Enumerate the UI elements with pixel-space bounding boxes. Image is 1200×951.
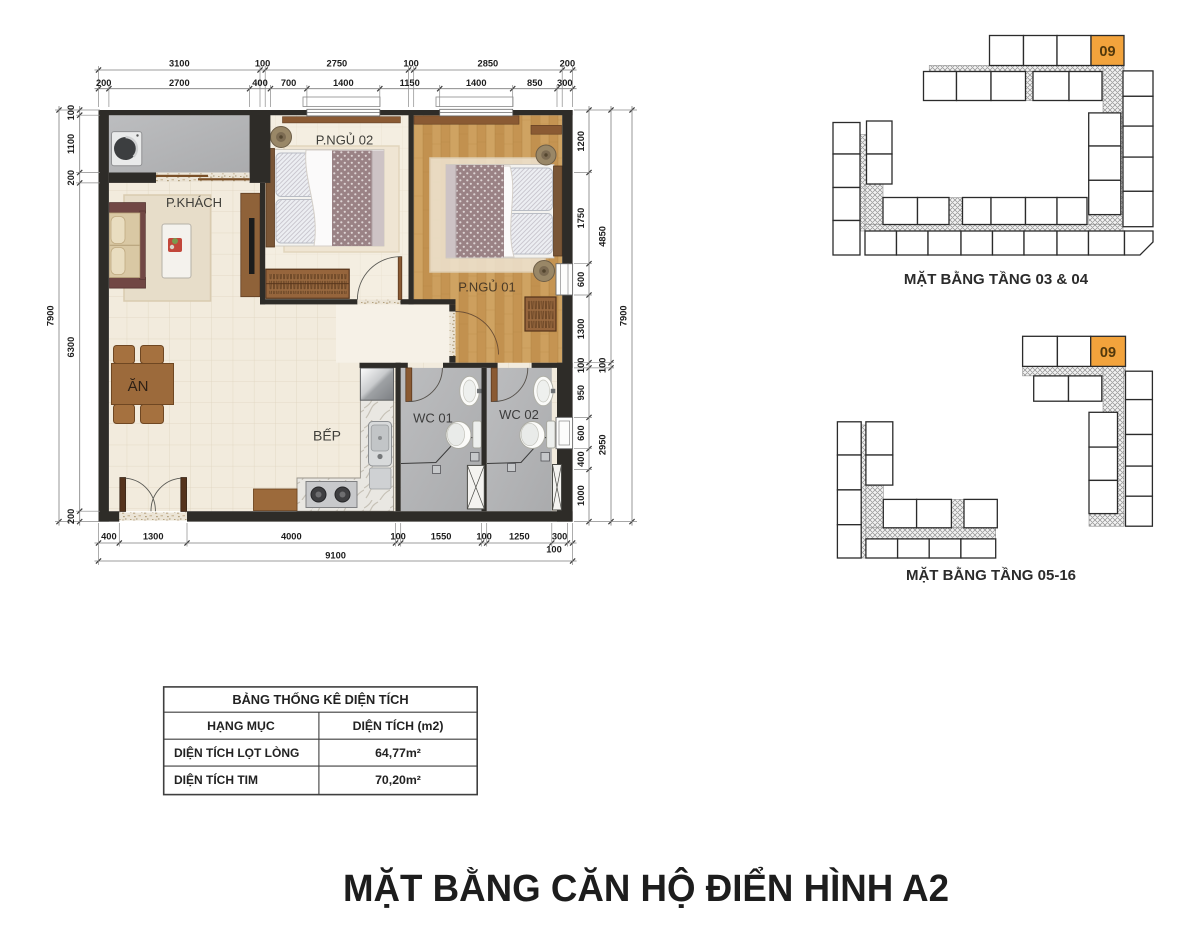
- svg-text:DIỆN TÍCH TIM: DIỆN TÍCH TIM: [174, 772, 258, 787]
- svg-text:70,20m²: 70,20m²: [375, 773, 421, 787]
- svg-text:1150: 1150: [400, 78, 420, 88]
- svg-text:950: 950: [576, 385, 586, 401]
- svg-text:HẠNG MỤC: HẠNG MỤC: [207, 719, 275, 733]
- svg-text:4850: 4850: [598, 226, 608, 247]
- svg-text:1750: 1750: [576, 208, 586, 229]
- svg-text:100: 100: [66, 105, 76, 121]
- svg-text:4000: 4000: [281, 532, 302, 542]
- svg-text:P.NGỦ 01: P.NGỦ 01: [458, 280, 516, 295]
- svg-text:300: 300: [557, 78, 573, 88]
- svg-text:64,77m²: 64,77m²: [375, 746, 421, 760]
- svg-text:300: 300: [552, 532, 568, 542]
- svg-text:600: 600: [576, 425, 586, 441]
- svg-text:WC 01: WC 01: [413, 411, 453, 426]
- svg-text:1400: 1400: [333, 78, 354, 88]
- svg-text:WC 02: WC 02: [499, 407, 539, 422]
- svg-text:BẾP: BẾP: [313, 428, 341, 444]
- svg-text:MẶT BẰNG CĂN HỘ ĐIỂN HÌNH A2: MẶT BẰNG CĂN HỘ ĐIỂN HÌNH A2: [343, 865, 949, 910]
- svg-text:DIỆN TÍCH (m2): DIỆN TÍCH (m2): [353, 718, 444, 733]
- svg-text:BẢNG THỐNG KÊ DIỆN TÍCH: BẢNG THỐNG KÊ DIỆN TÍCH: [232, 692, 408, 707]
- svg-text:DIỆN TÍCH LỌT LÒNG: DIỆN TÍCH LỌT LÒNG: [174, 745, 299, 760]
- svg-text:P.NGỦ 02: P.NGỦ 02: [316, 133, 374, 148]
- svg-text:1300: 1300: [576, 319, 586, 340]
- svg-text:09: 09: [1100, 345, 1116, 361]
- svg-text:1550: 1550: [431, 532, 452, 542]
- svg-text:2950: 2950: [598, 434, 608, 455]
- svg-text:100: 100: [598, 358, 608, 374]
- svg-text:850: 850: [527, 78, 543, 88]
- svg-text:200: 200: [560, 59, 576, 69]
- svg-text:100: 100: [576, 358, 586, 374]
- svg-text:1100: 1100: [66, 134, 76, 154]
- svg-text:MẶT BẰNG TẦNG 03 & 04: MẶT BẰNG TẦNG 03 & 04: [904, 270, 1089, 288]
- svg-text:ĂN: ĂN: [128, 378, 149, 395]
- svg-text:200: 200: [66, 509, 76, 525]
- svg-text:6300: 6300: [66, 337, 76, 358]
- svg-text:P.KHÁCH: P.KHÁCH: [166, 195, 222, 210]
- svg-text:200: 200: [66, 170, 76, 186]
- svg-text:100: 100: [255, 59, 271, 69]
- svg-text:1000: 1000: [576, 485, 586, 506]
- svg-text:400: 400: [576, 451, 586, 467]
- svg-text:700: 700: [281, 78, 297, 88]
- svg-text:100: 100: [403, 59, 419, 69]
- svg-text:2700: 2700: [169, 78, 190, 88]
- svg-text:9100: 9100: [325, 551, 346, 561]
- svg-text:1300: 1300: [143, 532, 164, 542]
- svg-text:1200: 1200: [576, 131, 586, 152]
- svg-text:400: 400: [101, 532, 117, 542]
- svg-text:2850: 2850: [478, 59, 499, 69]
- svg-text:7900: 7900: [46, 305, 56, 326]
- svg-text:600: 600: [576, 272, 586, 288]
- svg-text:100: 100: [390, 532, 406, 542]
- svg-text:MẶT BẰNG TẦNG 05-16: MẶT BẰNG TẦNG 05-16: [906, 566, 1076, 584]
- svg-text:2750: 2750: [327, 59, 348, 69]
- svg-text:09: 09: [1099, 44, 1115, 60]
- svg-text:1250: 1250: [509, 532, 530, 542]
- svg-text:7900: 7900: [619, 305, 629, 326]
- svg-text:3100: 3100: [169, 59, 190, 69]
- svg-text:200: 200: [96, 78, 112, 88]
- svg-text:1400: 1400: [466, 78, 487, 88]
- svg-text:100: 100: [476, 532, 492, 542]
- svg-text:400: 400: [252, 78, 268, 88]
- svg-text:100: 100: [546, 545, 562, 555]
